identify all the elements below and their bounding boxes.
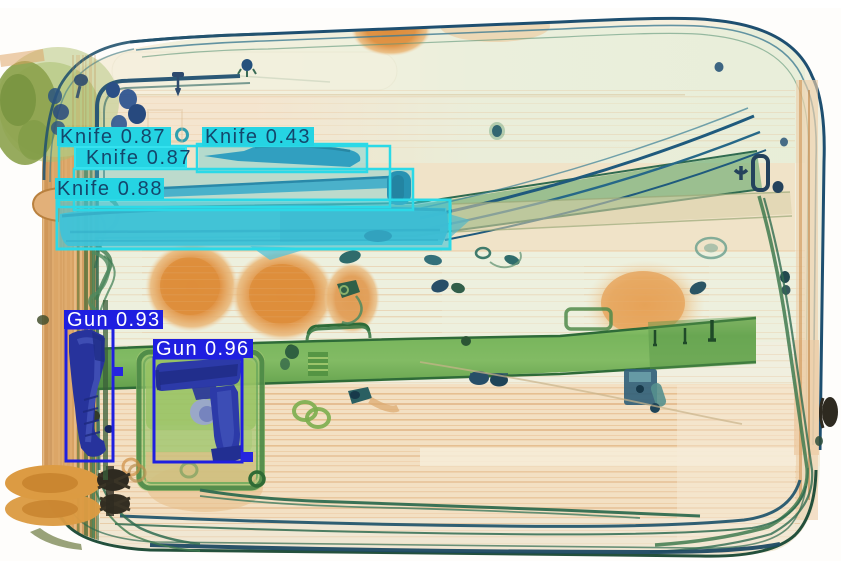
svg-text:Gun 0.96: Gun 0.96 (156, 338, 250, 360)
svg-text:Knife 0.43: Knife 0.43 (205, 126, 311, 148)
svg-text:Gun 0.93: Gun 0.93 (67, 309, 161, 331)
svg-text:Knife 0.88: Knife 0.88 (57, 178, 163, 200)
svg-text:Knife 0.87: Knife 0.87 (60, 126, 166, 148)
svg-text:Knife 0.87: Knife 0.87 (86, 147, 192, 169)
